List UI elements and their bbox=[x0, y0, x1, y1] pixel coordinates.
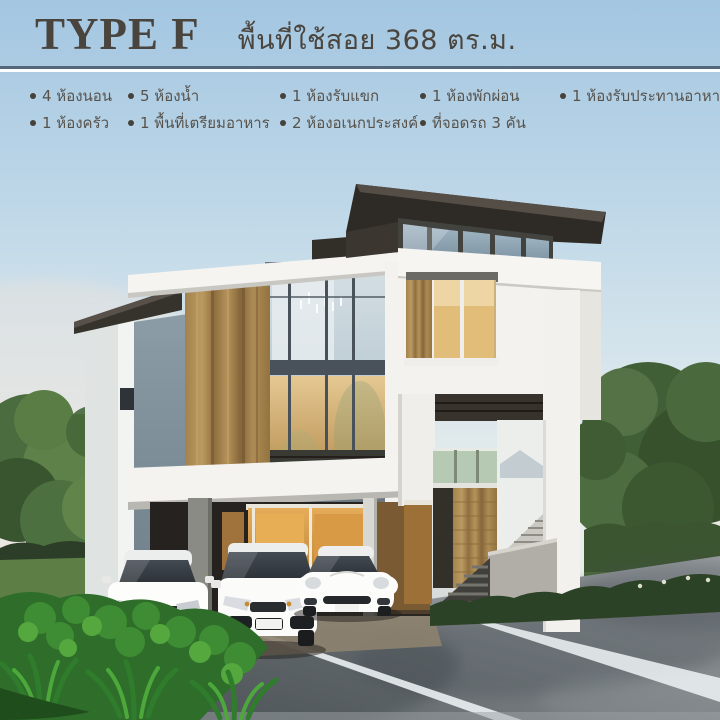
feature-pantry: 1 พื้นที่เตรียมอาหาร bbox=[128, 111, 280, 135]
bullet-icon bbox=[420, 120, 426, 126]
feature-multipurpose: 2 ห้องอเนกประสงค์ bbox=[280, 111, 420, 135]
feature-list: 4 ห้องนอน 5 ห้องน้ำ 1 ห้องรับแขก 1 ห้องพ… bbox=[30, 82, 705, 136]
bullet-icon bbox=[128, 93, 134, 99]
brochure-page: TYPE F พื้นที่ใช้สอย 368 ตร.ม. 4 ห้องนอน… bbox=[0, 0, 720, 720]
header: TYPE F พื้นที่ใช้สอย 368 ตร.ม. bbox=[35, 10, 517, 61]
feature-dining-room: 1 ห้องรับประทานอาหาร bbox=[560, 84, 720, 108]
terrace-soffit bbox=[433, 394, 557, 421]
bullet-icon bbox=[30, 120, 36, 126]
feature-bedrooms: 4 ห้องนอน bbox=[30, 84, 128, 108]
glass-balustrade bbox=[433, 448, 497, 488]
feature-bathrooms: 5 ห้องน้ำ bbox=[128, 84, 280, 108]
feature-parking: ที่จอดรถ 3 คัน bbox=[420, 111, 560, 135]
bullet-icon bbox=[280, 120, 286, 126]
feature-living-room: 1 ห้องรับแขก bbox=[280, 84, 420, 108]
bullet-icon bbox=[128, 120, 134, 126]
feature-relax-room: 1 ห้องพักผ่อน bbox=[420, 84, 560, 108]
feature-kitchen: 1 ห้องครัว bbox=[30, 111, 128, 135]
bullet-icon bbox=[560, 93, 566, 99]
bullet-icon bbox=[420, 93, 426, 99]
tower-window bbox=[404, 272, 498, 366]
usable-area-label: พื้นที่ใช้สอย 368 ตร.ม. bbox=[238, 18, 517, 61]
page-title: TYPE F bbox=[35, 10, 200, 60]
divider-line-light bbox=[0, 69, 720, 72]
bullet-icon bbox=[30, 93, 36, 99]
bullet-icon bbox=[280, 93, 286, 99]
